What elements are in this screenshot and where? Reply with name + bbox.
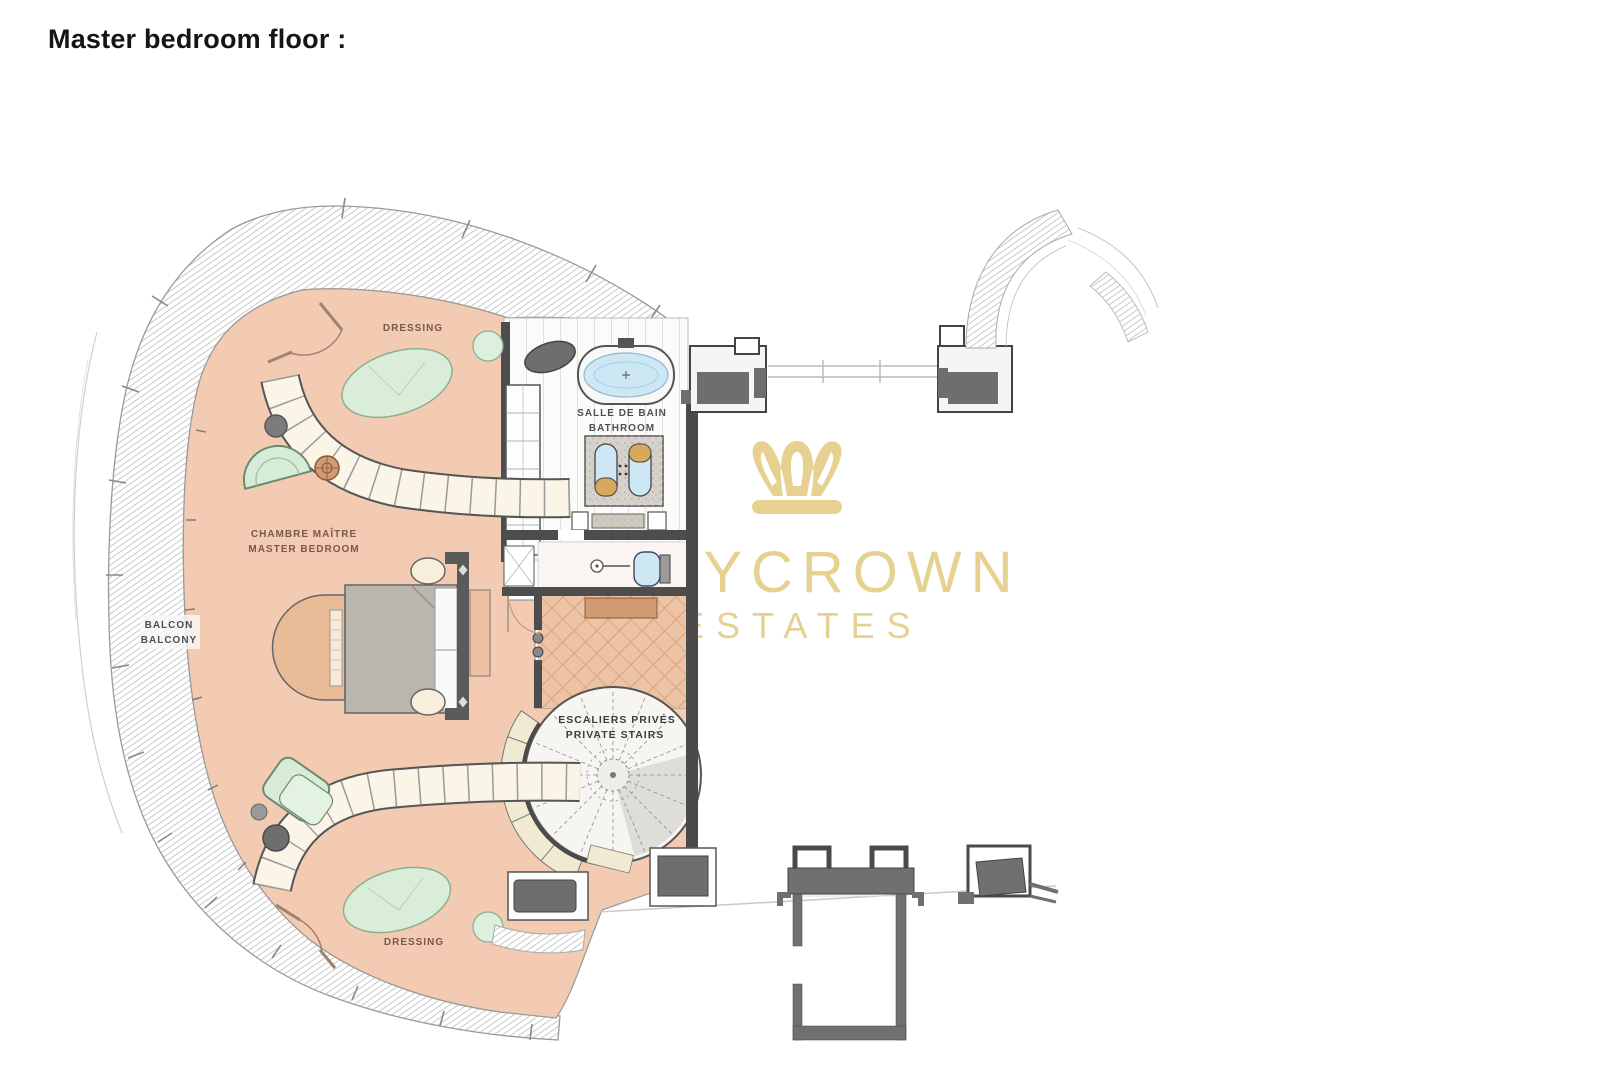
label-balcony: BALCONY <box>141 635 197 646</box>
wall-segment <box>502 530 688 540</box>
wall-panel <box>470 590 490 676</box>
console-table <box>585 598 657 618</box>
label-chambre-maitre: CHAMBRE MAÎTRE <box>251 527 357 540</box>
service-shaft <box>958 846 1058 904</box>
wall-block-bottom <box>650 848 716 906</box>
label-master-bedroom: MASTER BEDROOM <box>248 544 359 555</box>
pouf <box>315 456 339 480</box>
vanity-double-sink <box>585 436 663 506</box>
wc-toilet <box>634 552 670 586</box>
floor-plan: MYCROWN ESTATES <box>0 0 1600 1089</box>
wc-closet <box>504 546 534 586</box>
label-escaliers-prives: ESCALIERS PRIVÉS <box>558 713 676 726</box>
nightstand-bottom <box>411 689 445 715</box>
stool-bottom <box>263 825 289 851</box>
door-hinge <box>533 633 543 643</box>
corridor-west-wall <box>534 596 542 630</box>
rug-circle-top <box>473 331 503 361</box>
bathroom-area <box>501 318 688 562</box>
nightstand-top <box>411 558 445 584</box>
stool <box>265 415 287 437</box>
door-hinge <box>533 647 543 657</box>
side-table-small <box>251 804 267 820</box>
crown-base <box>752 500 842 514</box>
bed-wall <box>457 552 469 720</box>
label-dressing-bottom: DRESSING <box>384 937 444 948</box>
balcony-swoosh-top-right <box>966 210 1158 348</box>
tall-closet <box>506 385 540 555</box>
crown-icon <box>753 441 842 496</box>
brand-name: MYCROWN <box>646 540 1022 605</box>
right-wall <box>686 400 698 882</box>
label-dressing-top: DRESSING <box>383 323 443 334</box>
label-private-stairs: PRIVATE STAIRS <box>566 729 665 741</box>
label-balcon: BALCON <box>145 620 194 631</box>
wc-room <box>502 530 688 596</box>
brand-subtitle: ESTATES <box>680 605 923 646</box>
pillar-top-left <box>681 338 766 412</box>
elevator-shaft <box>777 848 924 1040</box>
wall-segment <box>502 587 688 596</box>
label-bathroom: BATHROOM <box>589 423 655 434</box>
window-lines <box>768 360 938 383</box>
watermark: MYCROWN ESTATES <box>646 441 1022 646</box>
tub-faucet <box>618 338 634 348</box>
label-salle-de-bain: SALLE DE BAIN <box>577 408 667 419</box>
